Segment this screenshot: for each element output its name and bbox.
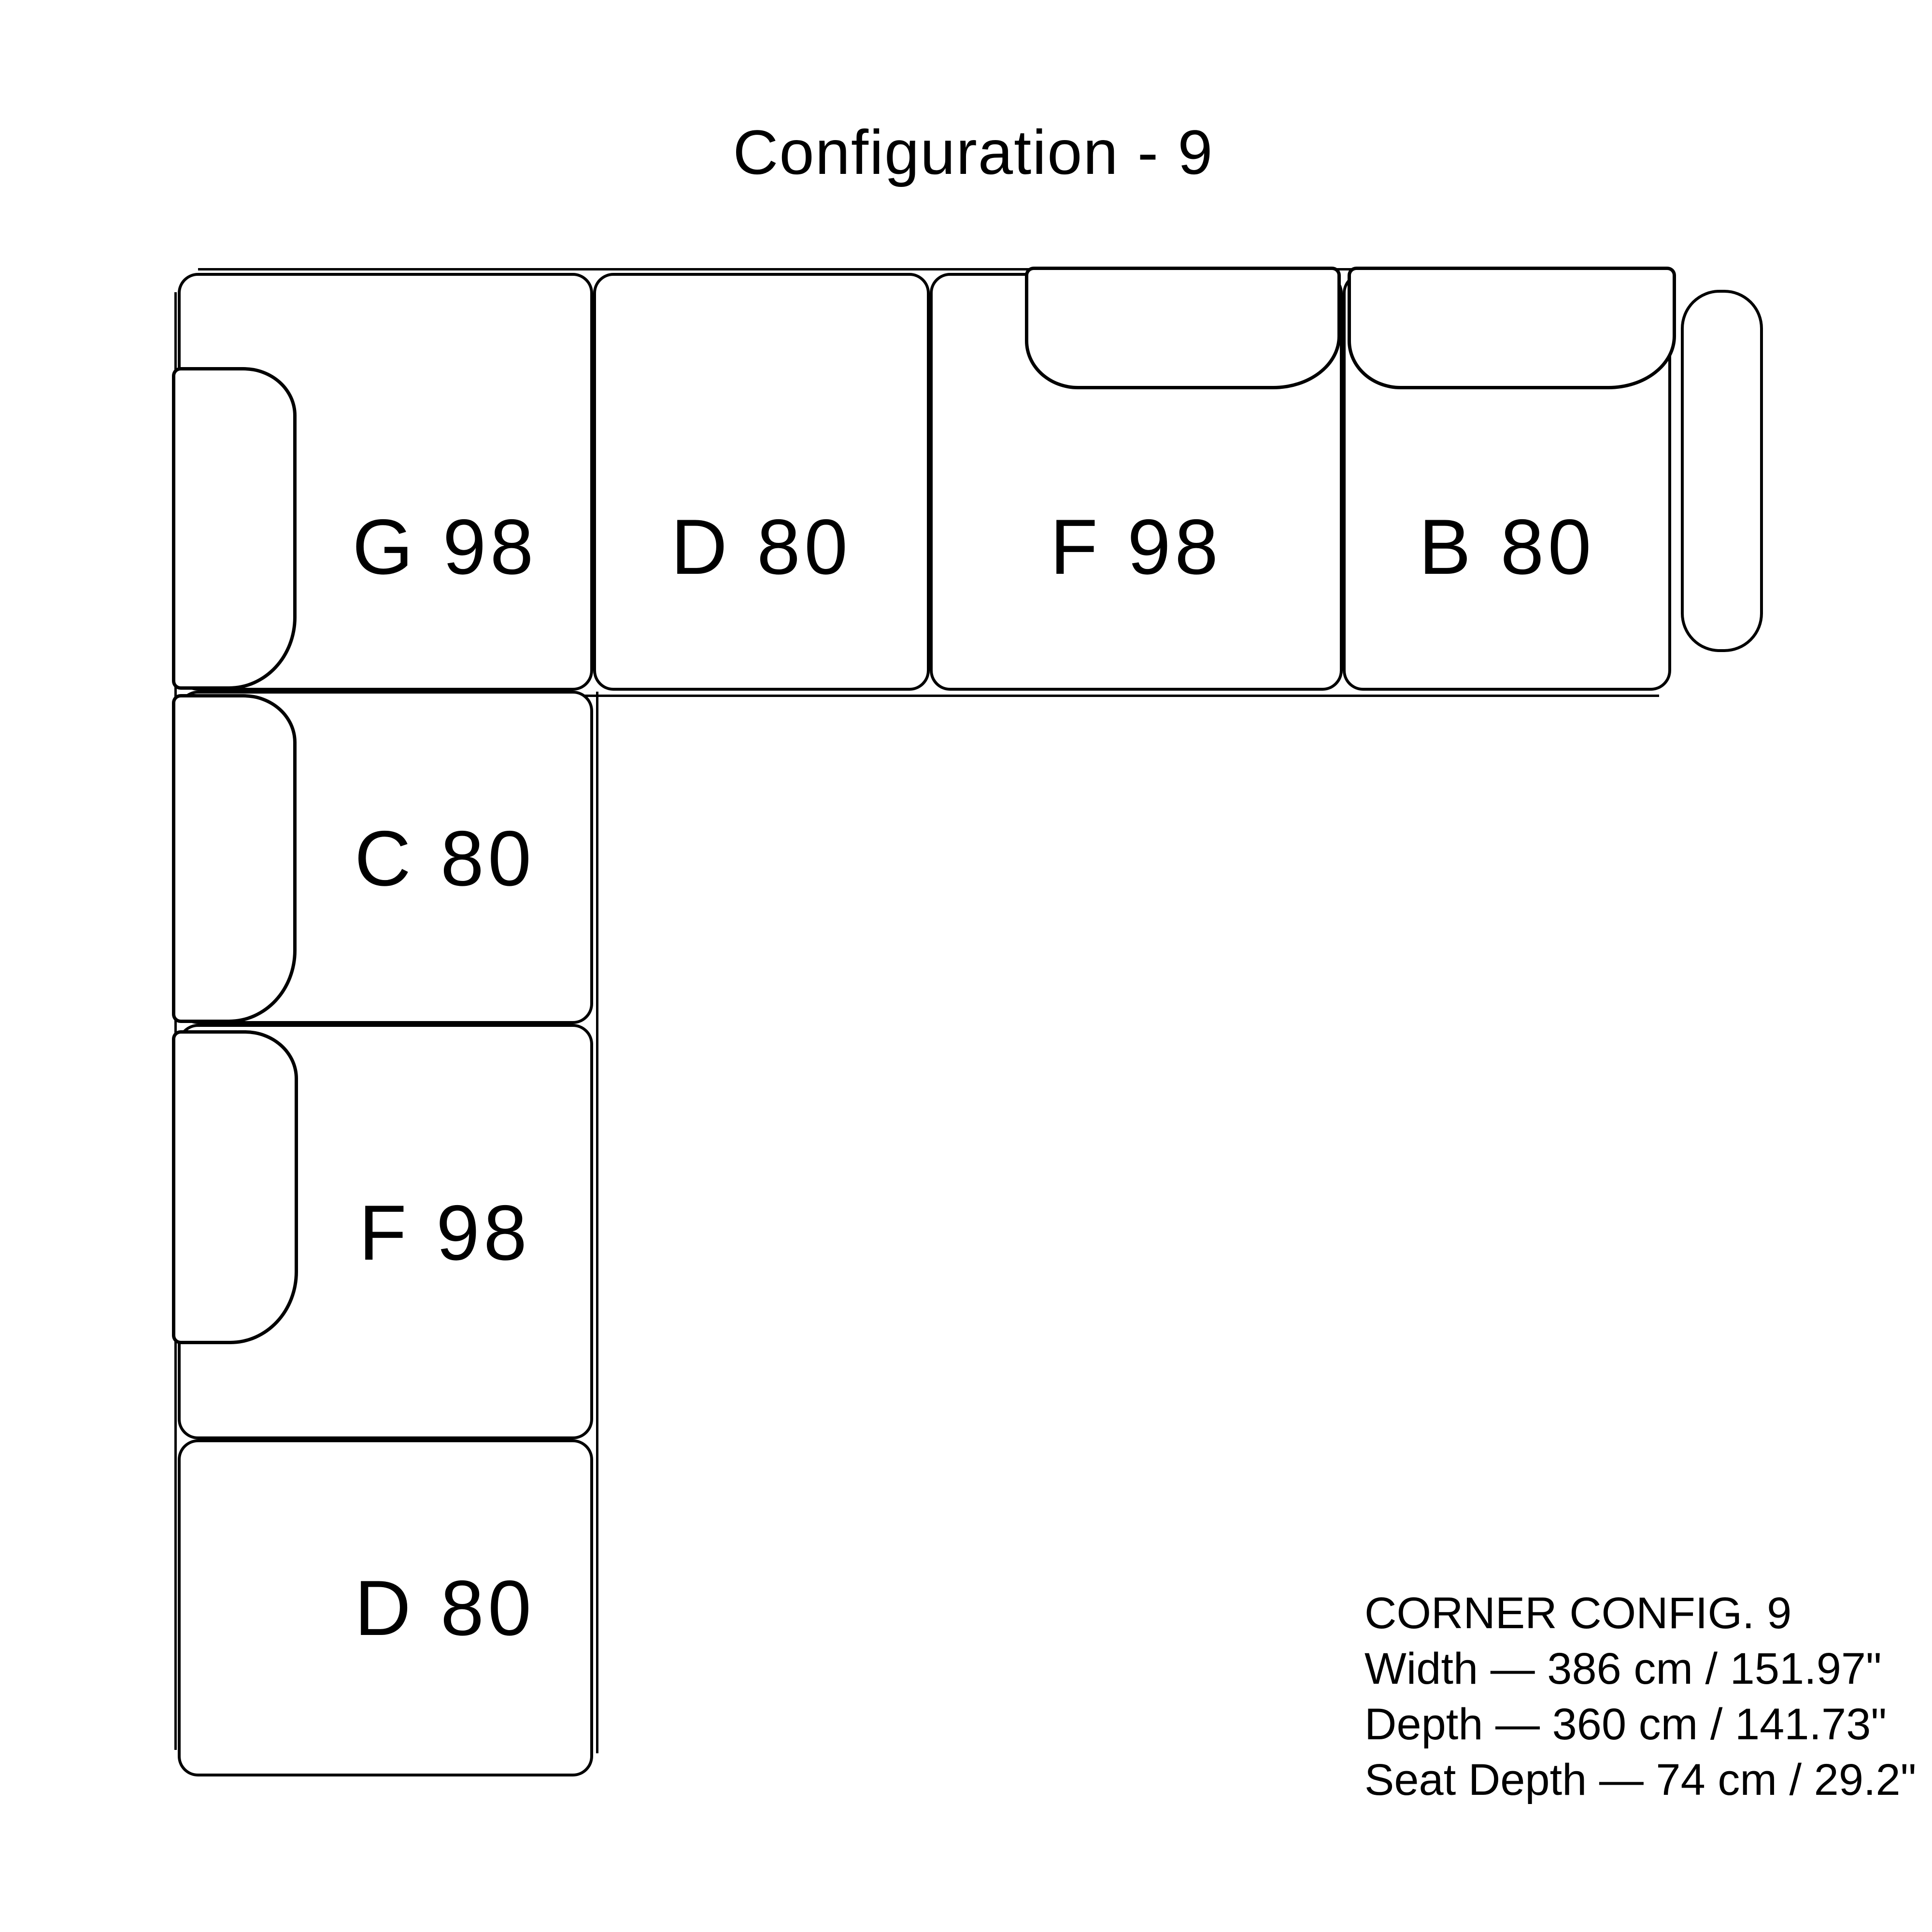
page-title: Configuration - 9	[635, 121, 1311, 184]
base-line-column-right	[596, 692, 598, 1753]
module-label-g98: G 98	[352, 502, 537, 592]
armrest-right-b80	[1681, 290, 1763, 652]
module-label-d80-top: D 80	[671, 502, 852, 592]
module-top-d80	[593, 273, 930, 691]
spec-seat-depth: Seat Depth — 74 cm / 29.2"	[1364, 1752, 1920, 1808]
backrest-cushion-f98-top	[1025, 267, 1341, 389]
spec-block: CORNER CONFIG. 9 Width — 386 cm / 151.97…	[1364, 1586, 1920, 1808]
module-label-b80: B 80	[1419, 502, 1595, 592]
module-label-c80: C 80	[355, 814, 535, 904]
spec-depth: Depth — 360 cm / 141.73"	[1364, 1697, 1920, 1752]
backrest-cushion-g98	[172, 367, 297, 690]
spec-heading: CORNER CONFIG. 9	[1364, 1586, 1920, 1641]
module-label-f98-left: F 98	[359, 1188, 531, 1278]
module-label-d80-left: D 80	[355, 1563, 535, 1653]
backrest-cushion-c80	[172, 694, 297, 1023]
backrest-cushion-b80	[1348, 267, 1676, 389]
configuration-diagram: Configuration - 9 G 98 D 80 F 98 B 80 C …	[0, 0, 1932, 1932]
spec-width: Width — 386 cm / 151.97"	[1364, 1641, 1920, 1697]
backrest-cushion-f98-left	[172, 1030, 298, 1344]
module-label-f98-top: F 98	[1050, 502, 1222, 592]
